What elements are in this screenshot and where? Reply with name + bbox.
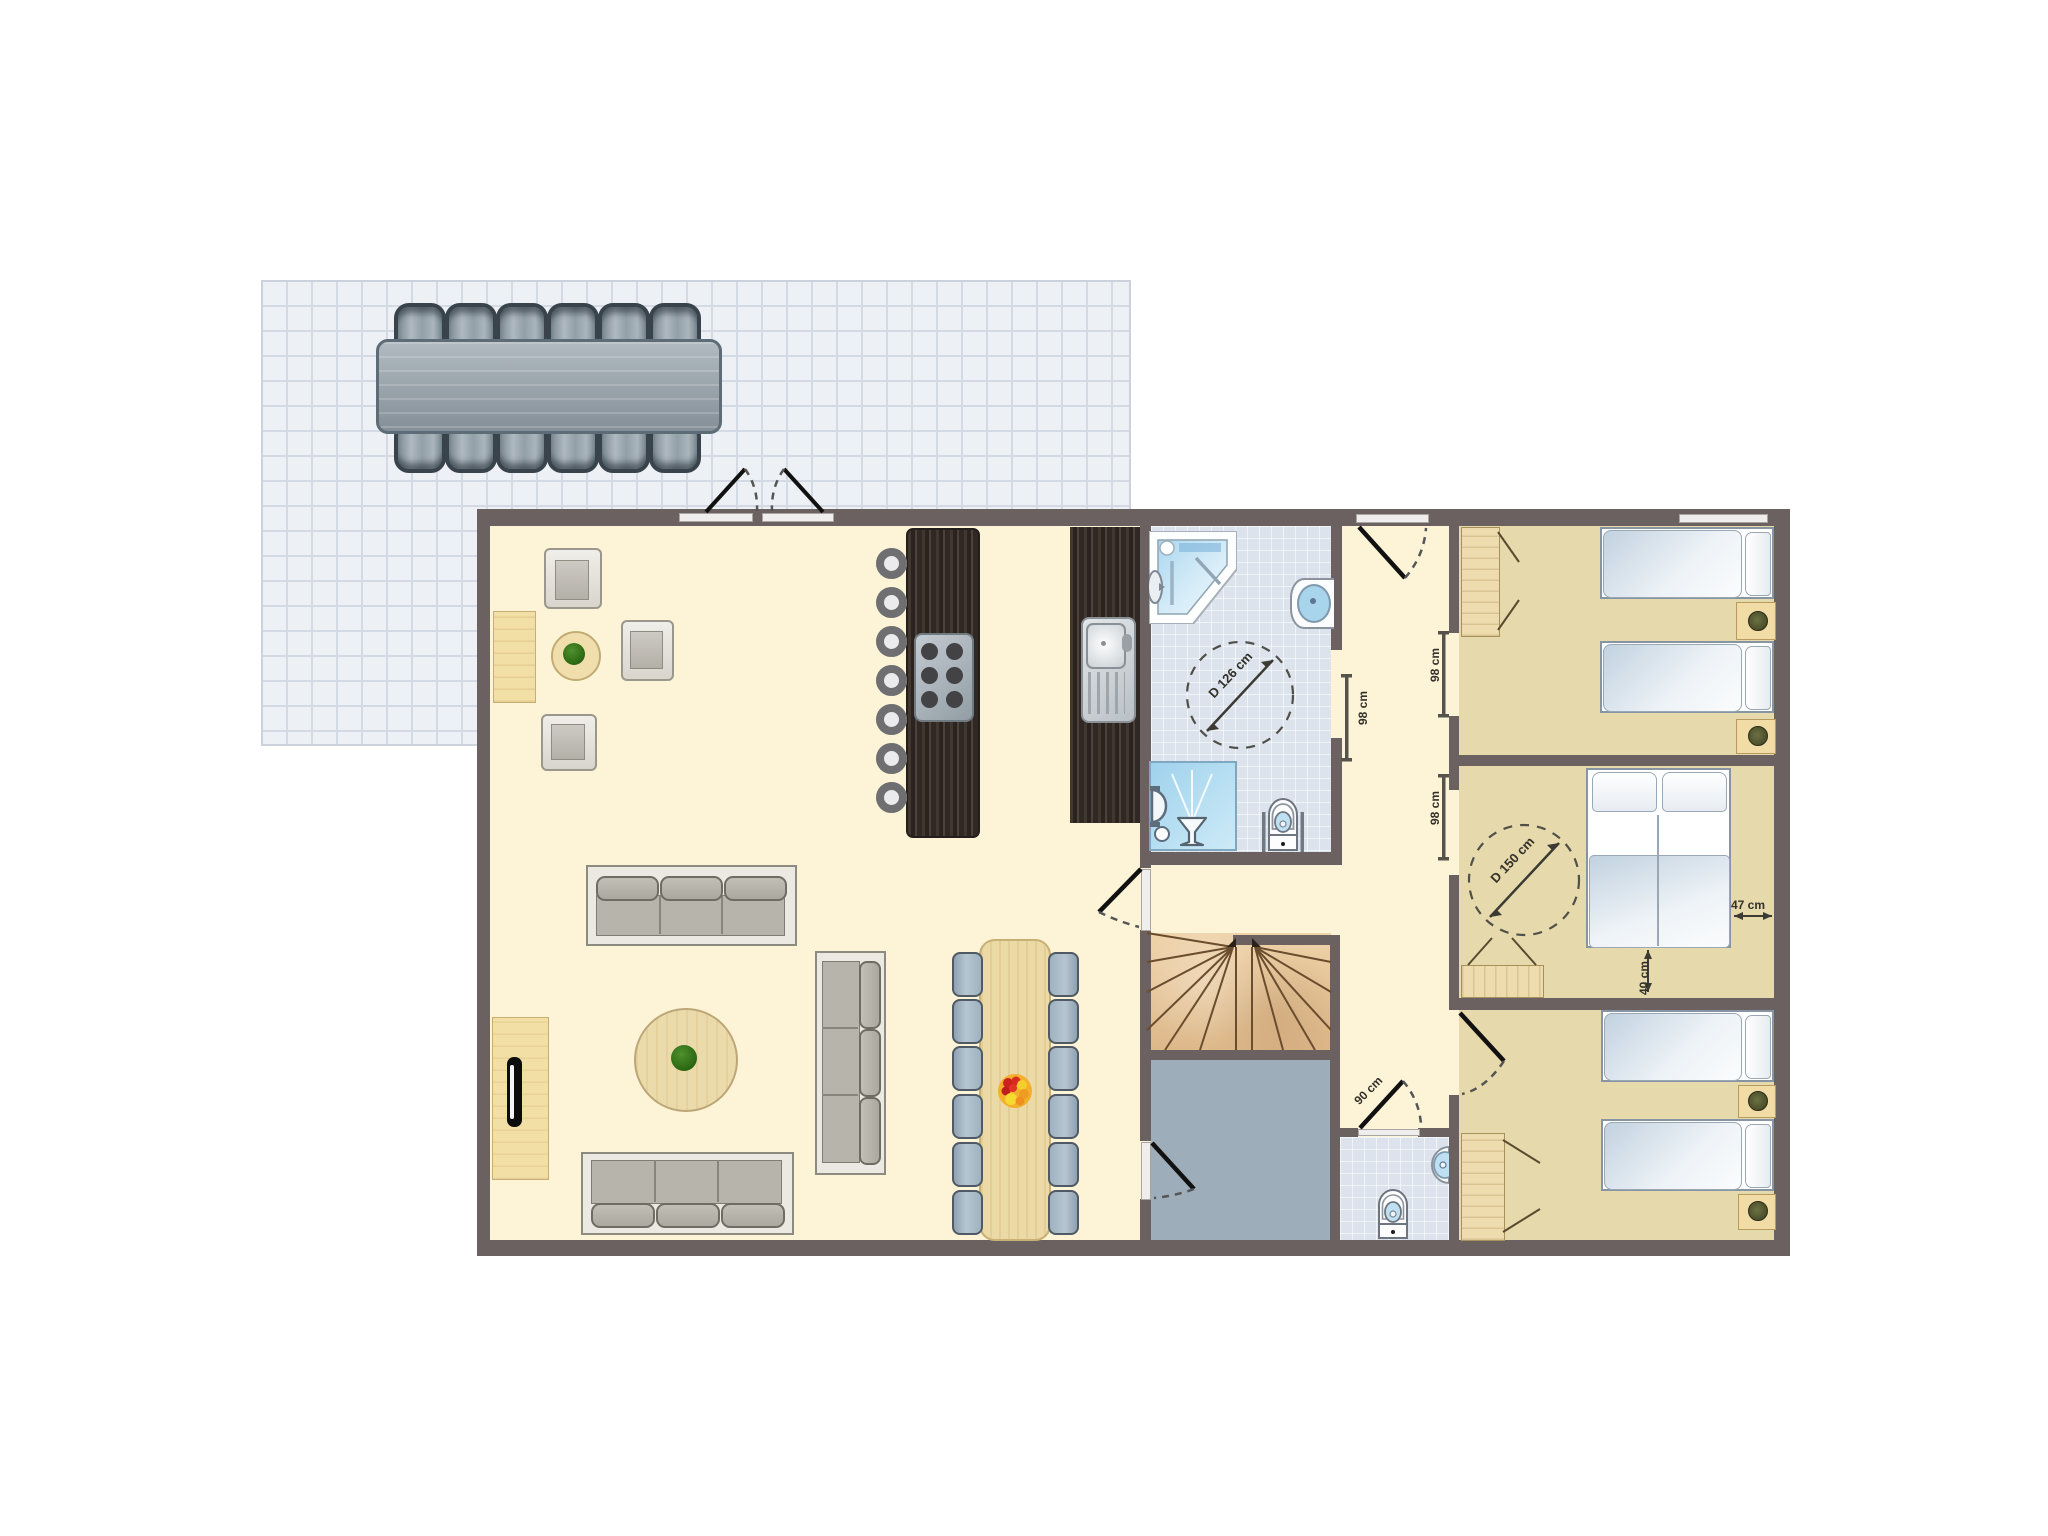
svg-text:98 cm: 98 cm bbox=[1356, 691, 1370, 725]
svg-text:98 cm: 98 cm bbox=[1428, 791, 1442, 825]
svg-text:40 cm: 40 cm bbox=[1637, 961, 1651, 995]
svg-text:D 150 cm: D 150 cm bbox=[1487, 834, 1537, 886]
svg-text:47 cm: 47 cm bbox=[1731, 898, 1765, 912]
svg-text:90 cm: 90 cm bbox=[1351, 1073, 1385, 1107]
svg-text:98 cm: 98 cm bbox=[1428, 648, 1442, 682]
svg-text:D 126 cm: D 126 cm bbox=[1205, 649, 1255, 701]
